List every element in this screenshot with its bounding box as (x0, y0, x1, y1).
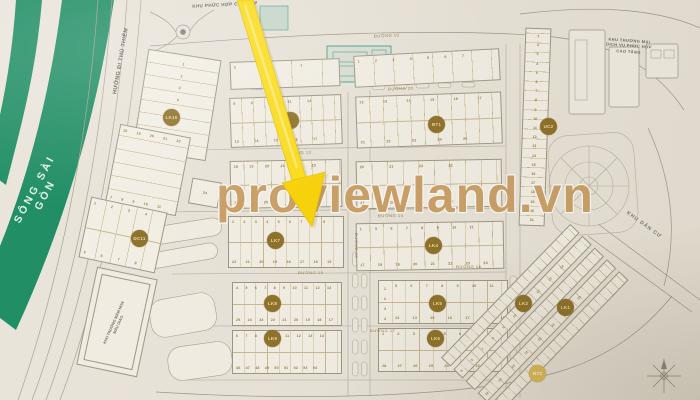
pointer-arrow (0, 0, 700, 400)
masterplan-map-photo: 1 2 3 4 5 6 7 8 18 19 20 21 22 7 8 9 10 … (0, 0, 700, 400)
